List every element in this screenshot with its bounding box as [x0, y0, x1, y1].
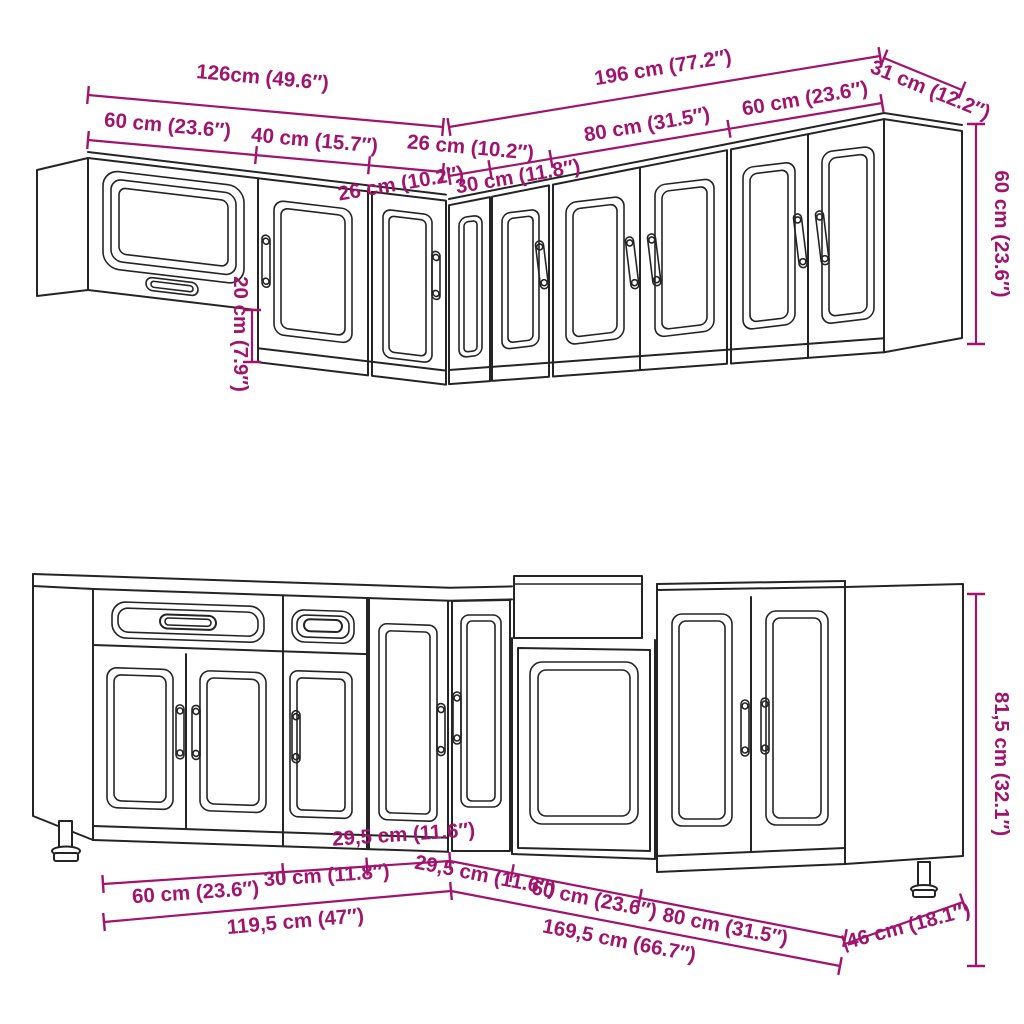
drawer-front	[292, 610, 354, 644]
base-cabinet-80	[657, 581, 845, 872]
lower-left-side-panel	[33, 586, 93, 840]
dim-upper-seg-40: 40 cm (15.7″)	[250, 123, 379, 157]
sink-cabinet	[512, 576, 655, 859]
dim-upper-height: 60 cm (23.6″)	[990, 170, 1013, 297]
dim-lower-seg-30: 30 cm (11.8″)	[263, 860, 390, 891]
lower-cabinet-assembly	[33, 574, 963, 897]
door-handle	[192, 705, 200, 759]
dim-lower-side-depth: 46 cm (18.1″)	[844, 898, 973, 953]
dim-upper-height-offset: 20 cm (7.9″)	[229, 276, 252, 392]
drawer-handle	[160, 614, 216, 630]
upper-left-side-panel	[37, 158, 88, 296]
door-panel	[379, 623, 437, 821]
dim-upper-seg-60-left: 60 cm (23.6″)	[103, 108, 232, 142]
lower-right-side-panel	[845, 584, 963, 864]
dim-upper-seg-60-right: 60 cm (23.6″)	[740, 77, 869, 121]
door-handle	[176, 705, 184, 759]
upper-right-side-panel	[884, 119, 962, 352]
drawer-front	[112, 602, 264, 643]
lower-left-run	[93, 589, 448, 852]
door-handle	[437, 703, 445, 755]
door-panel	[107, 667, 173, 809]
kitchen-cabinet-dimension-diagram: 126cm (49.6″) 196 cm (77.2″) 31 cm (12.2…	[0, 0, 1024, 1024]
dim-upper-seg-26-left: 26 cm (10.2″)	[406, 130, 535, 164]
dim-lower-height: 81,5 cm (32.1″)	[990, 692, 1013, 836]
door-handle	[292, 711, 300, 763]
dim-upper-total-left: 126cm (49.6″)	[195, 60, 329, 95]
countertop	[33, 574, 512, 601]
dim-upper-seg-80: 80 cm (31.5″)	[582, 103, 711, 147]
adjustable-foot	[911, 862, 937, 897]
door-panel	[200, 671, 266, 813]
sink-cabinet-open-top	[514, 576, 642, 638]
drawer-handle	[304, 619, 342, 632]
lower-right-run	[452, 576, 963, 897]
diagram-canvas: 126cm (49.6″) 196 cm (77.2″) 31 cm (12.2…	[0, 0, 1024, 1024]
